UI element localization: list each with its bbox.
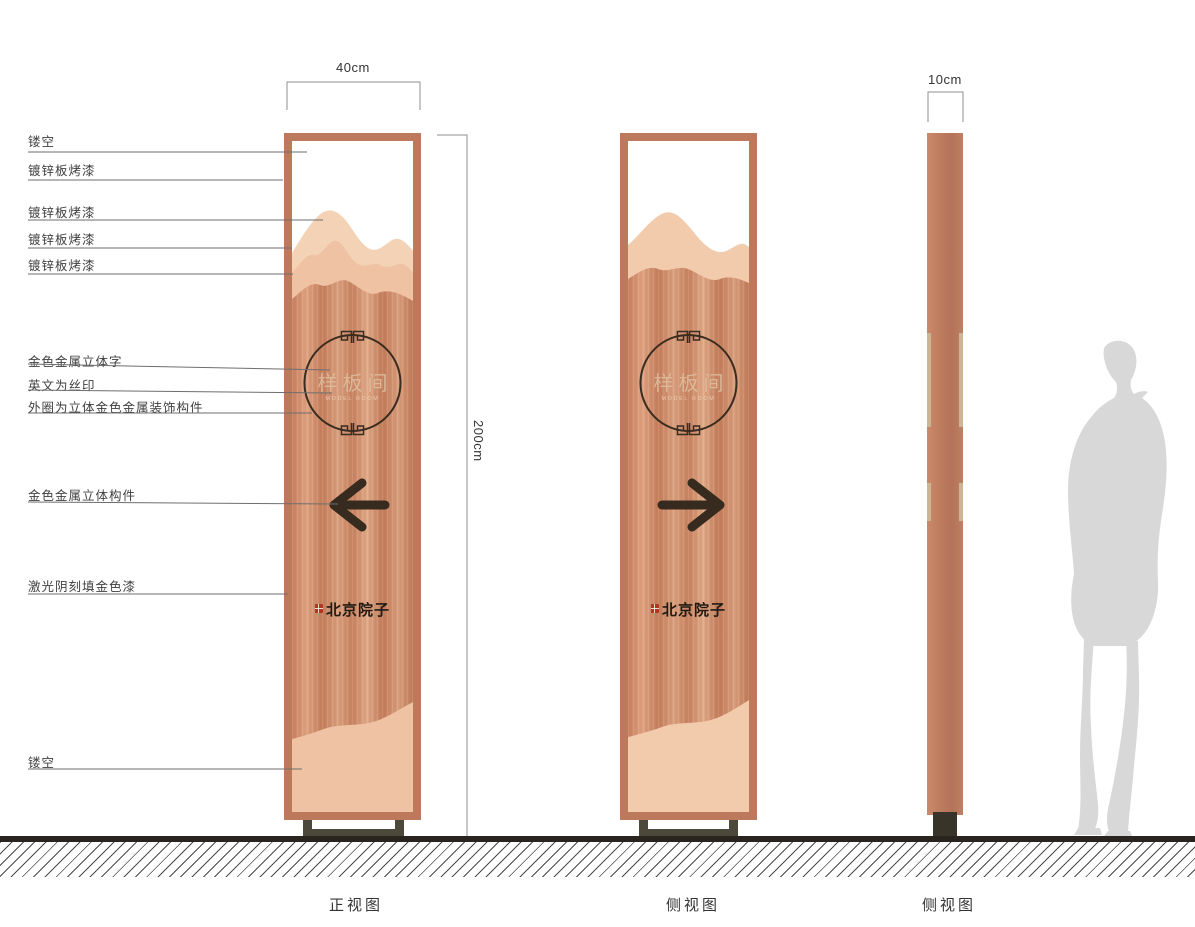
callout-galvanized-3: 镀锌板烤漆 xyxy=(28,229,96,248)
front-view-sign: 样板间 MODEL ROOM 北京院子 xyxy=(284,133,421,820)
brand-text: 北京院子 xyxy=(326,601,390,619)
dim-line-200cm xyxy=(437,135,467,836)
callout-galvanized-1: 镀锌板烤漆 xyxy=(28,160,96,179)
callout-galvanized-2: 镀锌板烤漆 xyxy=(28,202,96,221)
dim-bracket-10cm xyxy=(928,92,963,122)
edge-gold-strip xyxy=(927,333,931,427)
callout-laser-engrave: 激光阴刻填金色漆 xyxy=(28,576,136,595)
dim-height: 200cm xyxy=(471,420,486,462)
dim-side-width: 10cm xyxy=(928,72,962,87)
front-sign-foot-bar xyxy=(303,829,404,836)
front-sign-artwork xyxy=(292,210,413,812)
edge-gold-strip xyxy=(959,483,963,521)
caption-front-view: 正视图 xyxy=(329,894,383,915)
caption-edge-view: 侧视图 xyxy=(922,894,976,915)
plaque-subtext-en: MODEL ROOM xyxy=(628,396,749,402)
edge-view-panel xyxy=(927,133,963,815)
drawing-canvas: 样板间 MODEL ROOM 北京院子 xyxy=(0,0,1195,927)
annotation-lines xyxy=(0,0,1195,927)
edge-gold-strip xyxy=(927,483,931,521)
edge-gold-strip xyxy=(959,333,963,427)
brand-text: 北京院子 xyxy=(662,601,726,619)
callout-gold-letters: 金色金属立体字 xyxy=(28,351,123,370)
plaque-text: 样板间 xyxy=(292,367,413,396)
human-silhouette xyxy=(1038,336,1180,836)
side-view-sign: 样板间 MODEL ROOM 北京院子 xyxy=(620,133,757,820)
red-seal-icon xyxy=(315,604,323,613)
brand-logo: 北京院子 xyxy=(292,599,413,620)
callout-gold-ring: 外圈为立体金色金属装饰构件 xyxy=(28,397,204,416)
dim-bracket-40cm xyxy=(287,82,420,110)
callout-hollow-top: 镂空 xyxy=(28,131,55,150)
plaque-text: 样板间 xyxy=(628,367,749,396)
callout-gold-component: 金色金属立体构件 xyxy=(28,485,136,504)
front-sign-graphic xyxy=(284,133,421,820)
callout-hollow-bottom: 镂空 xyxy=(28,752,55,771)
ground-hatch xyxy=(0,842,1195,877)
caption-side-view: 侧视图 xyxy=(666,894,720,915)
callout-english-silkscreen: 英文为丝印 xyxy=(28,375,96,394)
red-seal-icon xyxy=(651,604,659,613)
edge-sign-foot xyxy=(933,812,957,838)
side-sign-graphic xyxy=(620,133,757,820)
callout-galvanized-4: 镀锌板烤漆 xyxy=(28,255,96,274)
plaque-subtext-en: MODEL ROOM xyxy=(292,396,413,402)
dim-front-width: 40cm xyxy=(336,60,370,75)
side-sign-artwork xyxy=(628,212,749,812)
side-sign-foot-bar xyxy=(639,829,738,836)
brand-logo: 北京院子 xyxy=(628,599,749,620)
